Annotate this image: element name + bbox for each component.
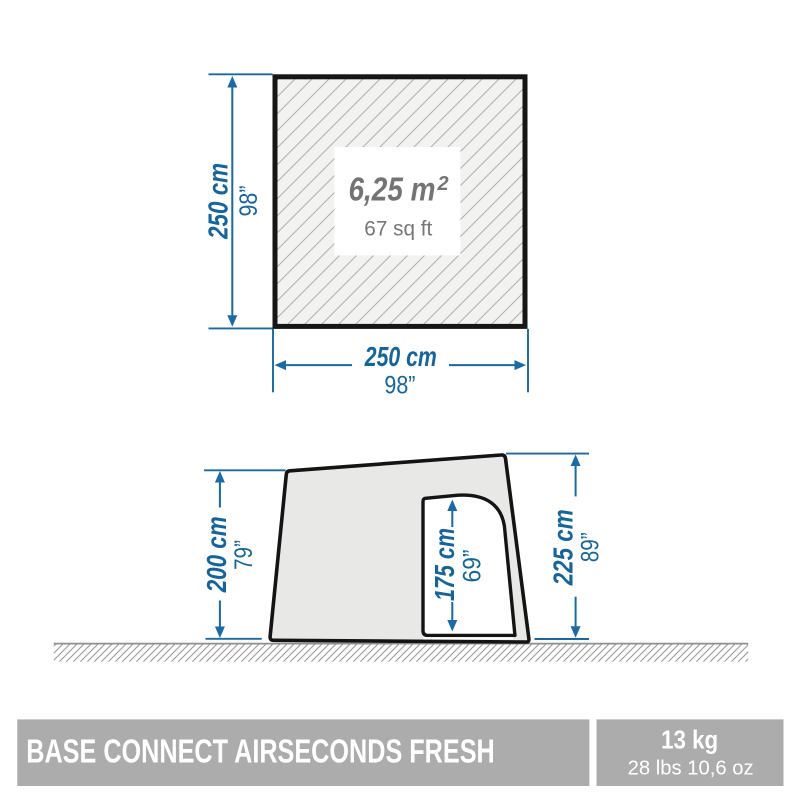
svg-text:98”: 98” bbox=[384, 371, 415, 399]
svg-text:BASE CONNECT AIRSECONDS FRESH: BASE CONNECT AIRSECONDS FRESH bbox=[26, 733, 495, 770]
svg-text:98”: 98” bbox=[235, 186, 263, 217]
svg-text:69”: 69” bbox=[459, 550, 487, 583]
svg-text:13 kg: 13 kg bbox=[661, 725, 718, 755]
svg-text:89”: 89” bbox=[577, 532, 605, 562]
svg-text:225 cm: 225 cm bbox=[548, 509, 579, 586]
svg-text:250 cm: 250 cm bbox=[364, 341, 437, 372]
svg-text:250 cm: 250 cm bbox=[203, 163, 234, 240]
svg-text:2: 2 bbox=[437, 173, 449, 195]
svg-text:28 lbs 10,6 oz: 28 lbs 10,6 oz bbox=[628, 758, 754, 780]
svg-text:79”: 79” bbox=[230, 540, 258, 570]
svg-text:6,25 m: 6,25 m bbox=[349, 170, 436, 207]
svg-text:175 cm: 175 cm bbox=[429, 528, 460, 601]
svg-text:67 sq ft: 67 sq ft bbox=[364, 217, 432, 240]
svg-text:200 cm: 200 cm bbox=[201, 516, 232, 593]
